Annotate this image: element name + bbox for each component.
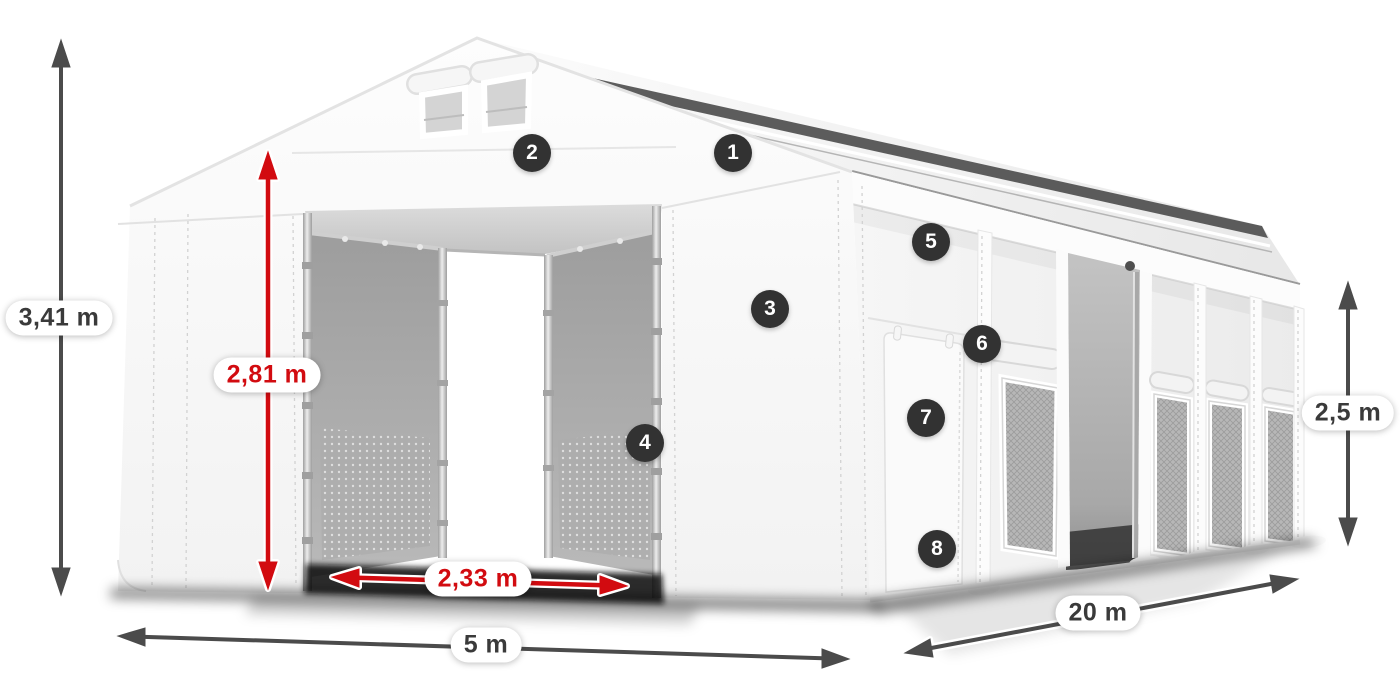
side-open-bay	[1056, 248, 1152, 570]
callout-3-number: 3	[764, 297, 776, 321]
callout-7-side-door: 7	[907, 399, 945, 437]
bay-pole-highlight	[1133, 272, 1134, 558]
gable-vent-right	[480, 64, 529, 130]
gable-vent-left	[417, 76, 465, 136]
callout-4-inner-mesh: 4	[626, 424, 664, 462]
callout-7-number: 7	[920, 406, 932, 430]
flap-hook-right	[945, 334, 953, 349]
callout-2-front-band: 2	[513, 134, 551, 172]
door-opening	[302, 204, 662, 599]
callout-1-roof: 1	[714, 134, 752, 172]
window1-mesh	[1002, 378, 1058, 556]
bay-interior	[1068, 253, 1140, 566]
dim-label-side-length: 20 m	[1056, 596, 1141, 631]
interior-mesh-panel-right	[543, 231, 659, 576]
side-window-3	[1209, 388, 1245, 551]
dim-label-door-height: 2,81 m	[214, 358, 321, 393]
callout-8-side-door-bottom: 8	[918, 530, 956, 568]
interior-mesh-panel-left	[309, 233, 448, 577]
bay-pole	[1135, 272, 1136, 558]
bay-bracket	[1125, 261, 1135, 271]
flap-hook-left	[893, 326, 901, 341]
vent-right-mesh	[484, 75, 529, 130]
bay-right-edge	[1138, 270, 1152, 560]
side-window-4	[1265, 395, 1296, 545]
dim-label-total-height: 3,41 m	[6, 301, 113, 336]
dim-label-side-height: 2,5 m	[1302, 396, 1394, 431]
callout-5-number: 5	[925, 230, 937, 254]
vent-left-mesh	[422, 88, 465, 136]
dim-label-front-width: 5 m	[451, 628, 522, 663]
callout-5-side-panel: 5	[912, 223, 950, 261]
mesh-left-pole	[438, 248, 447, 558]
callout-8-number: 8	[931, 537, 943, 561]
mesh-left-perforation	[320, 428, 430, 560]
bay-left-edge	[1056, 248, 1070, 568]
callout-4-number: 4	[639, 431, 651, 455]
side-window-2	[1154, 380, 1190, 556]
dim-label-door-width: 2,33 m	[425, 562, 532, 597]
callout-6-window-roll: 6	[963, 325, 1001, 363]
mesh-right-pole	[544, 255, 553, 558]
callout-6-number: 6	[976, 332, 988, 356]
callout-1-number: 1	[727, 141, 739, 165]
tent-dimension-diagram: 3,41 m 2,81 m 2,33 m 5 m 20 m 2,5 m 1 2 …	[0, 0, 1400, 700]
tent-illustration	[0, 0, 1400, 700]
callout-2-number: 2	[526, 141, 538, 165]
callout-3-front-wall: 3	[751, 290, 789, 328]
